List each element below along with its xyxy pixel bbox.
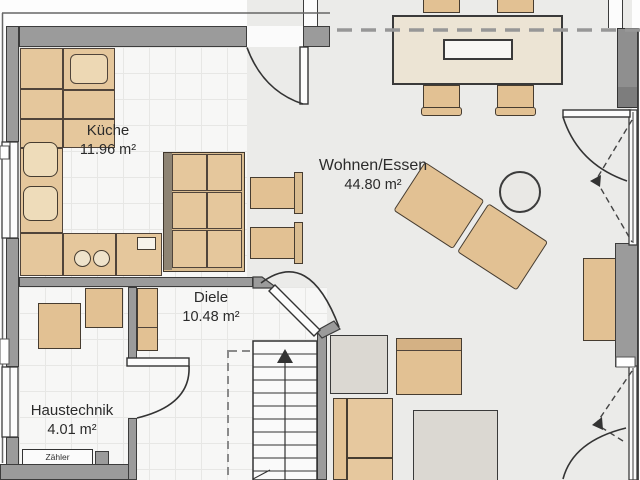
tilt-indicator xyxy=(596,371,632,441)
door-leaf xyxy=(127,358,189,366)
room-area: 4.01 m² xyxy=(12,421,132,439)
door-swing-arc xyxy=(137,366,189,418)
door-leaf xyxy=(269,285,320,336)
room-name: Wohnen/Essen xyxy=(303,156,443,176)
entry-door xyxy=(247,47,308,104)
room-name: Küche xyxy=(48,122,168,141)
tilt-arrow-icon xyxy=(590,175,601,187)
window-kitchen xyxy=(0,142,18,238)
terrace-door xyxy=(563,110,637,245)
room-name: Diele xyxy=(151,289,271,308)
door-leaf xyxy=(300,47,308,104)
staircase xyxy=(253,341,317,480)
door-swing-arc xyxy=(247,48,303,105)
tilt-arrow-icon xyxy=(592,417,603,430)
room-area: 11.96 m² xyxy=(48,141,168,159)
window-swing-arc xyxy=(563,428,626,479)
room-label-kueche: Küche 11.96 m² xyxy=(48,122,168,159)
room-area: 10.48 m² xyxy=(151,308,271,326)
haustechnik-door xyxy=(127,358,189,418)
room-name: Haustechnik xyxy=(12,402,132,421)
room-label-wohnen-essen: Wohnen/Essen 44.80 m² xyxy=(303,156,443,194)
room-label-diele: Diele 10.48 m² xyxy=(151,289,271,326)
door-swing-arc xyxy=(563,117,627,181)
door-leaf xyxy=(563,110,630,117)
floor-plan: Zähler xyxy=(0,0,640,480)
room-label-haustechnik: Haustechnik 4.01 m² xyxy=(12,402,132,439)
room-area: 44.80 m² xyxy=(303,176,443,194)
window-terrace-lower xyxy=(563,357,637,480)
